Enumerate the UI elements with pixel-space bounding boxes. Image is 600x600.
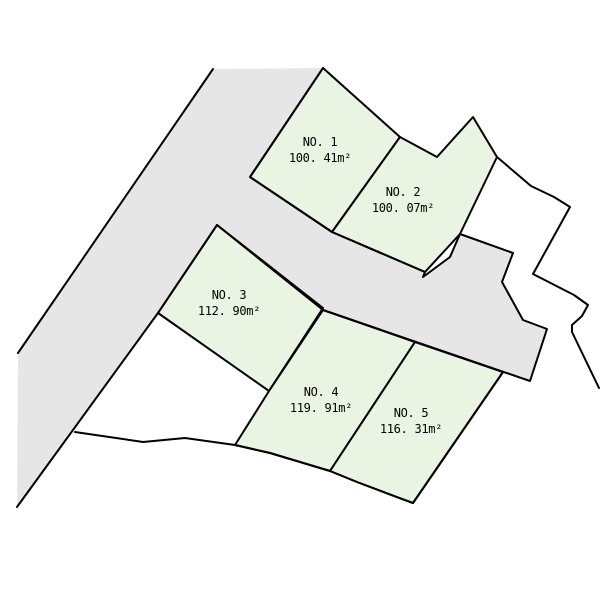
lot-number-label-no2: NO. 2: [386, 185, 421, 199]
lot-area-label-no5: 116. 31m²: [380, 422, 442, 436]
lot-area-label-no3: 112. 90m²: [198, 304, 260, 318]
lot-area-label-no2: 100. 07m²: [372, 201, 434, 215]
lot-number-label-no1: NO. 1: [303, 135, 338, 149]
lot-number-label-no4: NO. 4: [304, 385, 339, 399]
lot-area-label-no4: 119. 91m²: [290, 401, 352, 415]
lot-number-label-no5: NO. 5: [394, 406, 429, 420]
parcel-map-svg: NO. 1100. 41m²NO. 2100. 07m²NO. 3112. 90…: [0, 0, 600, 600]
land-plot-diagram: NO. 1100. 41m²NO. 2100. 07m²NO. 3112. 90…: [0, 0, 600, 600]
lot-number-label-no3: NO. 3: [212, 288, 247, 302]
lot-area-label-no1: 100. 41m²: [289, 151, 351, 165]
